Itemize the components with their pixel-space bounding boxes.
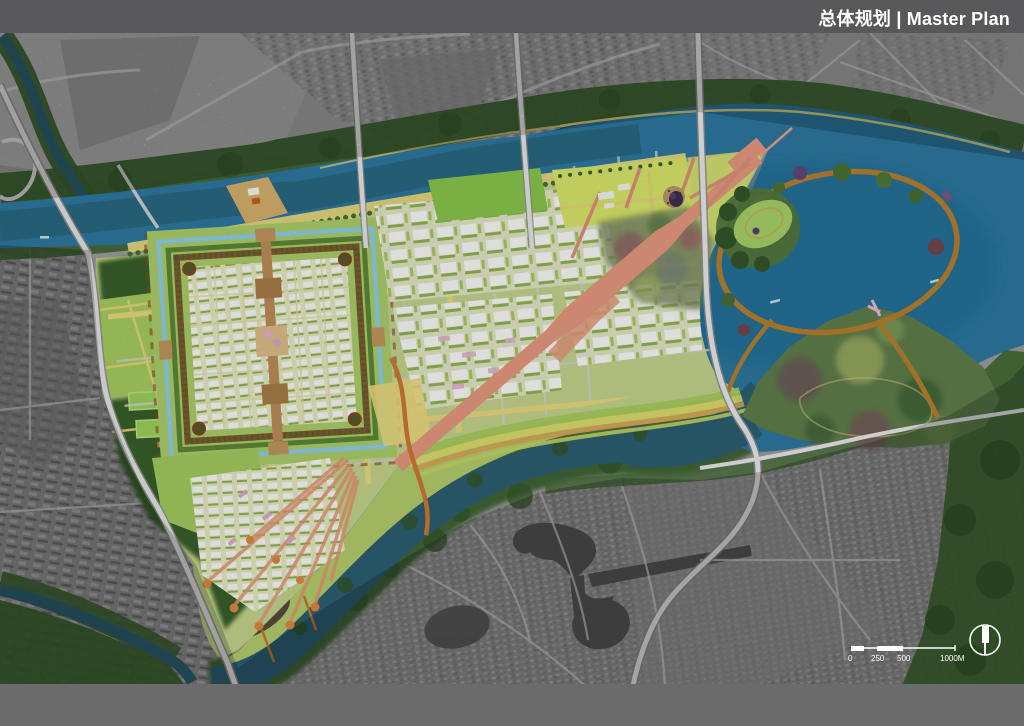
svg-text:500: 500 <box>897 654 911 663</box>
svg-text:1000M: 1000M <box>940 654 965 663</box>
svg-text:250: 250 <box>871 654 885 663</box>
svg-text:0: 0 <box>848 654 853 663</box>
